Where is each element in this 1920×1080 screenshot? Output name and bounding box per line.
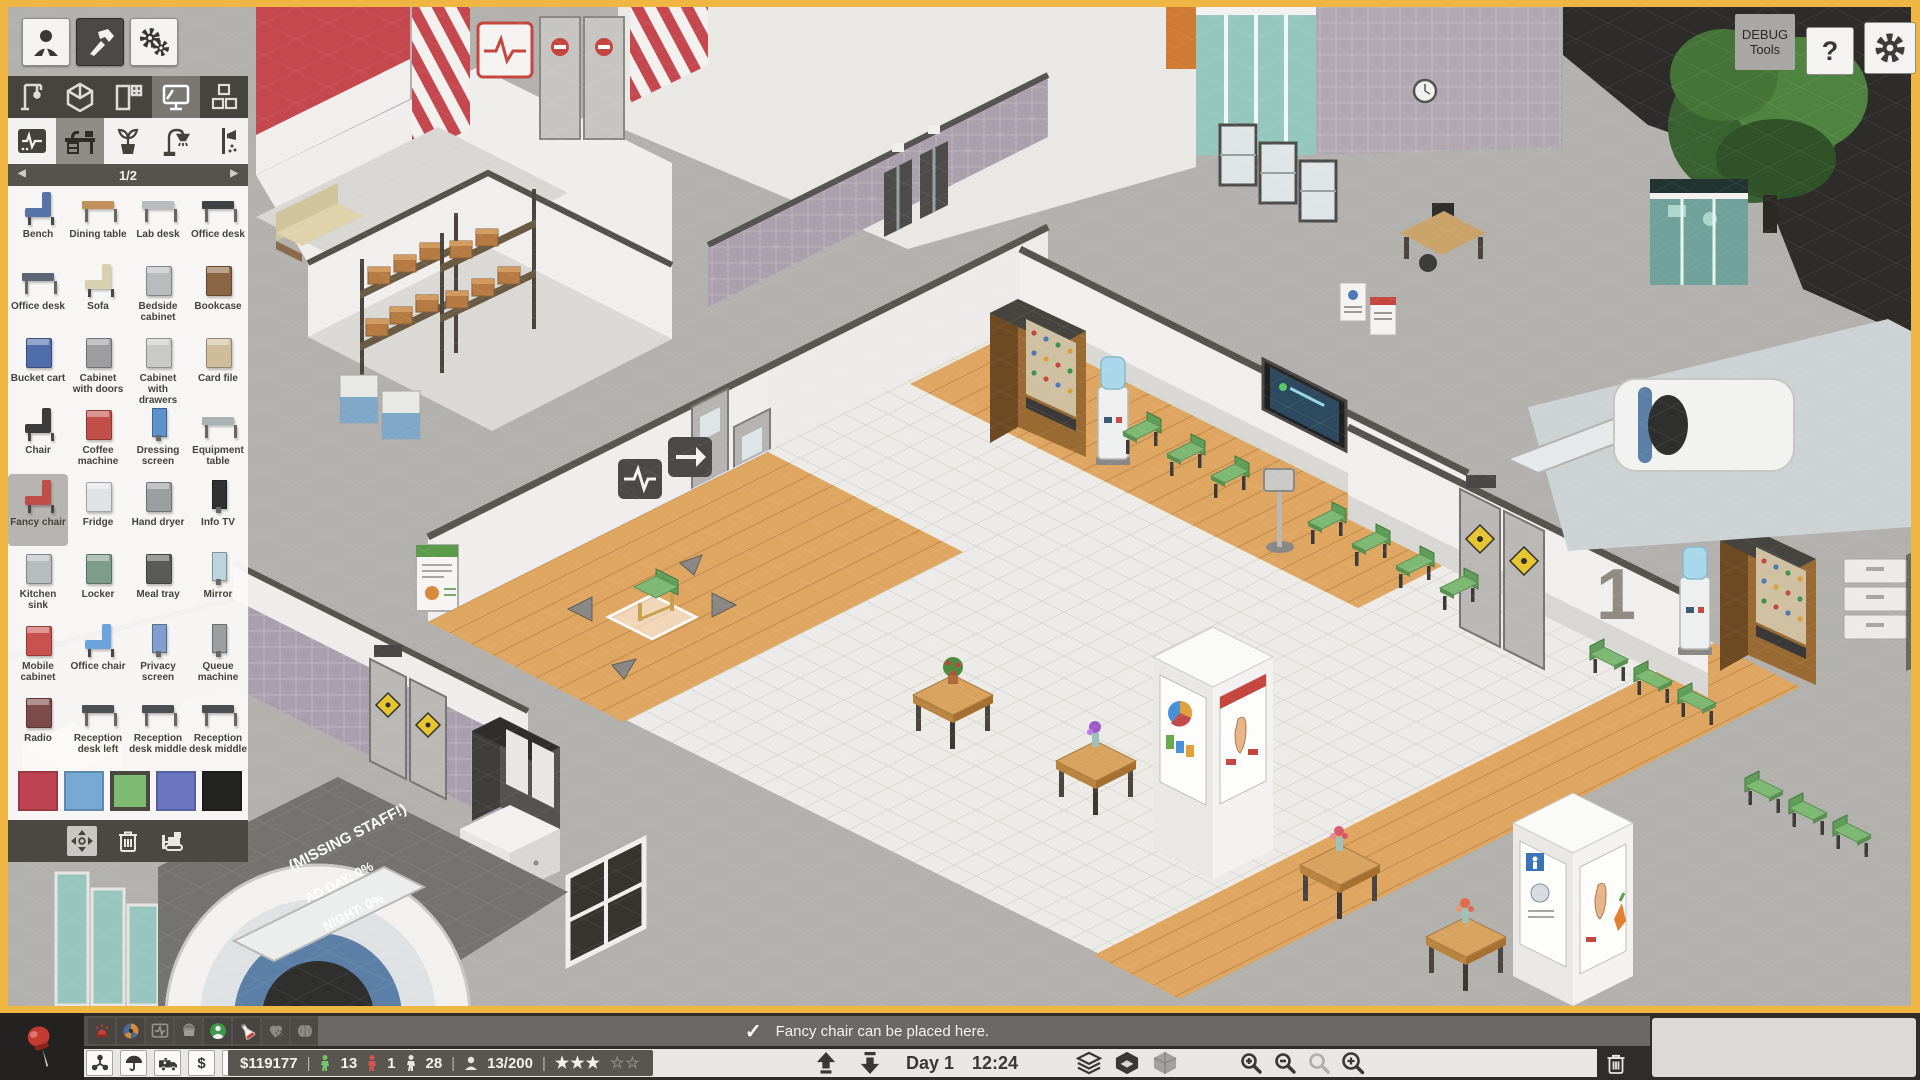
flask-icon xyxy=(237,1021,257,1041)
panel-tools xyxy=(8,820,248,862)
swatch-purple[interactable] xyxy=(156,771,196,811)
monitor-icon xyxy=(161,82,191,112)
tab-plants[interactable] xyxy=(104,118,152,164)
staff-count-icon xyxy=(464,1056,478,1071)
item-reception-desk-left[interactable]: Reception desk left xyxy=(68,690,128,762)
move-icon xyxy=(70,829,94,853)
demolish-button[interactable] xyxy=(1600,1052,1632,1076)
delete-tool-button[interactable] xyxy=(113,826,143,856)
ambulance-button[interactable] xyxy=(154,1050,181,1076)
item-grid: Bench Dining table Lab desk Office desk … xyxy=(8,186,248,762)
money-value: $119177 xyxy=(240,1055,298,1072)
zoom-out-icon xyxy=(1273,1051,1297,1075)
item-locker[interactable]: Locker xyxy=(68,546,128,618)
zoom-fit-button[interactable] xyxy=(1338,1049,1368,1077)
ecg-monitor-icon xyxy=(16,126,48,156)
item-bedside-cabinet[interactable]: Bedside cabinet xyxy=(128,258,188,330)
finances-button[interactable]: $ xyxy=(188,1050,215,1076)
tab-decoration[interactable] xyxy=(200,118,248,164)
radiation-icon xyxy=(121,1021,141,1041)
day-counter: Day 1 xyxy=(906,1049,954,1077)
minimap-panel[interactable] xyxy=(1652,1018,1916,1077)
control-strip: $ $119177 | 13 1 28 | xyxy=(84,1049,1597,1077)
floor-up-button[interactable] xyxy=(812,1049,840,1077)
swatch-green[interactable] xyxy=(110,771,150,811)
layers-icon xyxy=(1076,1051,1102,1075)
tab-doors-windows[interactable] xyxy=(104,76,152,118)
zoom-reset-button[interactable] xyxy=(1304,1049,1334,1077)
bulldozer-icon xyxy=(160,829,188,853)
hammer-icon xyxy=(84,26,116,58)
heart-gear-icon xyxy=(266,1021,286,1041)
page-prev-button[interactable]: ◀ xyxy=(18,168,26,179)
tab-medical-equipment[interactable] xyxy=(8,118,56,164)
item-bench[interactable]: Bench xyxy=(8,186,68,258)
blocks-icon xyxy=(209,82,239,112)
item-meal-tray[interactable]: Meal tray xyxy=(128,546,188,618)
object-category-tabs xyxy=(8,118,248,164)
item-reception-desk-middle-2[interactable]: Reception desk middle xyxy=(188,690,248,762)
patient-critical-icon xyxy=(366,1055,378,1072)
visitors-count: 28 xyxy=(426,1055,443,1072)
emergency-light-icon xyxy=(92,1021,112,1041)
tab-rooms[interactable] xyxy=(56,76,104,118)
checkmark-icon: ✓ xyxy=(745,1019,762,1044)
item-equipment-table[interactable]: Equipment table xyxy=(188,402,248,474)
item-coffee-machine[interactable]: Coffee machine xyxy=(68,402,128,474)
item-bookcase[interactable]: Bookcase xyxy=(188,258,248,330)
item-sofa[interactable]: Sofa xyxy=(68,258,128,330)
rating-stars-filled: ★★★ xyxy=(555,1053,601,1073)
item-fridge[interactable]: Fridge xyxy=(68,474,128,546)
help-label: ? xyxy=(1822,36,1839,67)
dept-laboratory[interactable] xyxy=(233,1018,260,1044)
gear-icon xyxy=(1872,30,1908,66)
dept-neurology[interactable] xyxy=(291,1018,318,1044)
management-button[interactable] xyxy=(86,1050,113,1076)
dept-surgery[interactable] xyxy=(175,1018,202,1044)
floor-down-button[interactable] xyxy=(856,1049,884,1077)
item-office-desk[interactable]: Office desk xyxy=(188,186,248,258)
help-button[interactable]: ? xyxy=(1806,27,1854,75)
game-viewport: 1 xyxy=(8,7,1911,1006)
pushpin-icon xyxy=(21,1023,63,1071)
zoom-fit-icon xyxy=(1341,1051,1365,1075)
room-cube-icon xyxy=(65,82,95,112)
debug-label-2: Tools xyxy=(1750,42,1780,57)
settings-button[interactable] xyxy=(1864,22,1916,74)
build-mode-tabs xyxy=(8,76,248,118)
hexagon-icon xyxy=(1114,1051,1140,1075)
item-fancy-chair[interactable]: Fancy chair xyxy=(8,474,68,546)
bottom-bar: ✓ Fancy chair can be placed here. xyxy=(0,1013,1920,1080)
bulldoze-tool-button[interactable] xyxy=(159,826,189,856)
tab-furniture[interactable] xyxy=(56,118,104,164)
trash-icon xyxy=(116,829,140,853)
tab-objects[interactable] xyxy=(200,76,248,118)
umbrella-icon xyxy=(125,1054,143,1072)
cardiograph-icon xyxy=(150,1021,170,1041)
department-tabs xyxy=(84,1016,318,1046)
staff-icon xyxy=(30,26,62,58)
page-indicator: 1/2 xyxy=(119,168,137,183)
dept-cardiology[interactable] xyxy=(262,1018,289,1044)
floor-down-icon xyxy=(859,1051,881,1075)
management-menu-button[interactable] xyxy=(130,18,178,66)
item-radio[interactable]: Radio xyxy=(8,690,68,762)
patients-treated-count: 13 xyxy=(340,1055,357,1072)
zoom-in-icon xyxy=(1239,1051,1263,1075)
item-privacy-screen[interactable]: Privacy screen xyxy=(128,618,188,690)
build-menu-button[interactable] xyxy=(76,18,124,66)
swatch-red[interactable] xyxy=(18,771,58,811)
trash-icon xyxy=(1606,1053,1626,1075)
view-walls-button[interactable] xyxy=(1112,1049,1142,1077)
dept-wards[interactable] xyxy=(146,1018,173,1044)
item-info-tv[interactable]: Info TV xyxy=(188,474,248,546)
debug-label-1: DEBUG xyxy=(1742,27,1788,42)
item-reception-desk-middle[interactable]: Reception desk middle xyxy=(128,690,188,762)
zoom-out-button[interactable] xyxy=(1270,1049,1300,1077)
insurance-button[interactable] xyxy=(120,1050,147,1076)
item-chair[interactable]: Chair xyxy=(8,402,68,474)
item-kitchen-sink[interactable]: Kitchen sink xyxy=(8,546,68,618)
visitor-icon xyxy=(405,1055,417,1072)
dept-radiology[interactable] xyxy=(117,1018,144,1044)
item-dining-table[interactable]: Dining table xyxy=(68,186,128,258)
network-icon xyxy=(91,1054,109,1072)
notification-text: Fancy chair can be placed here. xyxy=(776,1023,989,1040)
lamp-icon xyxy=(161,126,191,156)
debug-tools-button[interactable]: DEBUG Tools xyxy=(1735,14,1795,70)
rating-stars-empty: ☆☆ xyxy=(610,1053,641,1073)
move-tool-button[interactable] xyxy=(67,826,97,856)
view-3d-button[interactable] xyxy=(1150,1049,1180,1077)
gears-icon xyxy=(137,25,171,59)
zoom-in-button[interactable] xyxy=(1236,1049,1266,1077)
build-panel: ◀ 1/2 ▶ Bench Dining table Lab desk Offi… xyxy=(8,76,248,862)
item-queue-machine[interactable]: Queue machine xyxy=(188,618,248,690)
page-next-button[interactable]: ▶ xyxy=(230,168,238,179)
pagination-bar: ◀ 1/2 ▶ xyxy=(8,164,248,186)
notification-pin[interactable] xyxy=(0,1013,84,1080)
cube-icon xyxy=(1152,1051,1178,1075)
tab-lamps[interactable] xyxy=(152,118,200,164)
crane-icon xyxy=(17,82,47,112)
patients-critical-count: 1 xyxy=(387,1055,395,1072)
door-icon xyxy=(113,82,143,112)
brain-icon xyxy=(295,1021,315,1041)
item-card-file[interactable]: Card file xyxy=(188,330,248,402)
item-office-desk-2[interactable]: Office desk xyxy=(8,258,68,330)
plant-icon xyxy=(113,126,143,156)
swatch-black[interactable] xyxy=(202,771,242,811)
swatch-blue[interactable] xyxy=(64,771,104,811)
view-layers-button[interactable] xyxy=(1074,1049,1104,1077)
item-lab-desk[interactable]: Lab desk xyxy=(128,186,188,258)
item-cabinet-with-doors[interactable]: Cabinet with doors xyxy=(68,330,128,402)
surgeon-icon xyxy=(179,1021,199,1041)
doctor-icon xyxy=(208,1021,228,1041)
item-mirror[interactable]: Mirror xyxy=(188,546,248,618)
dept-emergency[interactable] xyxy=(88,1018,115,1044)
construction-grid xyxy=(8,7,1911,1006)
staff-menu-button[interactable] xyxy=(22,18,70,66)
tab-electronics[interactable] xyxy=(152,76,200,118)
item-hand-dryer[interactable]: Hand dryer xyxy=(128,474,188,546)
item-office-chair[interactable]: Office chair xyxy=(68,618,128,690)
patient-treated-icon xyxy=(319,1055,331,1072)
item-cabinet-with-drawers[interactable]: Cabinet with drawers xyxy=(128,330,188,402)
desk-furniture-icon xyxy=(63,126,97,156)
dollar-icon: $ xyxy=(197,1055,205,1072)
staff-count: 13/200 xyxy=(487,1055,533,1072)
tab-construction[interactable] xyxy=(8,76,56,118)
item-bucket-cart[interactable]: Bucket cart xyxy=(8,330,68,402)
notification-bar: ✓ Fancy chair can be placed here. xyxy=(84,1016,1650,1046)
time-display: 12:24 xyxy=(972,1049,1018,1077)
item-dressing-screen[interactable]: Dressing screen xyxy=(128,402,188,474)
ambulance-icon xyxy=(158,1054,178,1072)
item-mobile-cabinet[interactable]: Mobile cabinet xyxy=(8,618,68,690)
sprayer-icon xyxy=(209,126,239,156)
dept-general-practice[interactable] xyxy=(204,1018,231,1044)
floor-up-icon xyxy=(815,1051,837,1075)
color-swatches xyxy=(8,762,248,820)
zoom-disabled-icon xyxy=(1307,1051,1331,1075)
status-readout: $119177 | 13 1 28 | 13/200 | ★★★☆☆ xyxy=(228,1050,653,1076)
